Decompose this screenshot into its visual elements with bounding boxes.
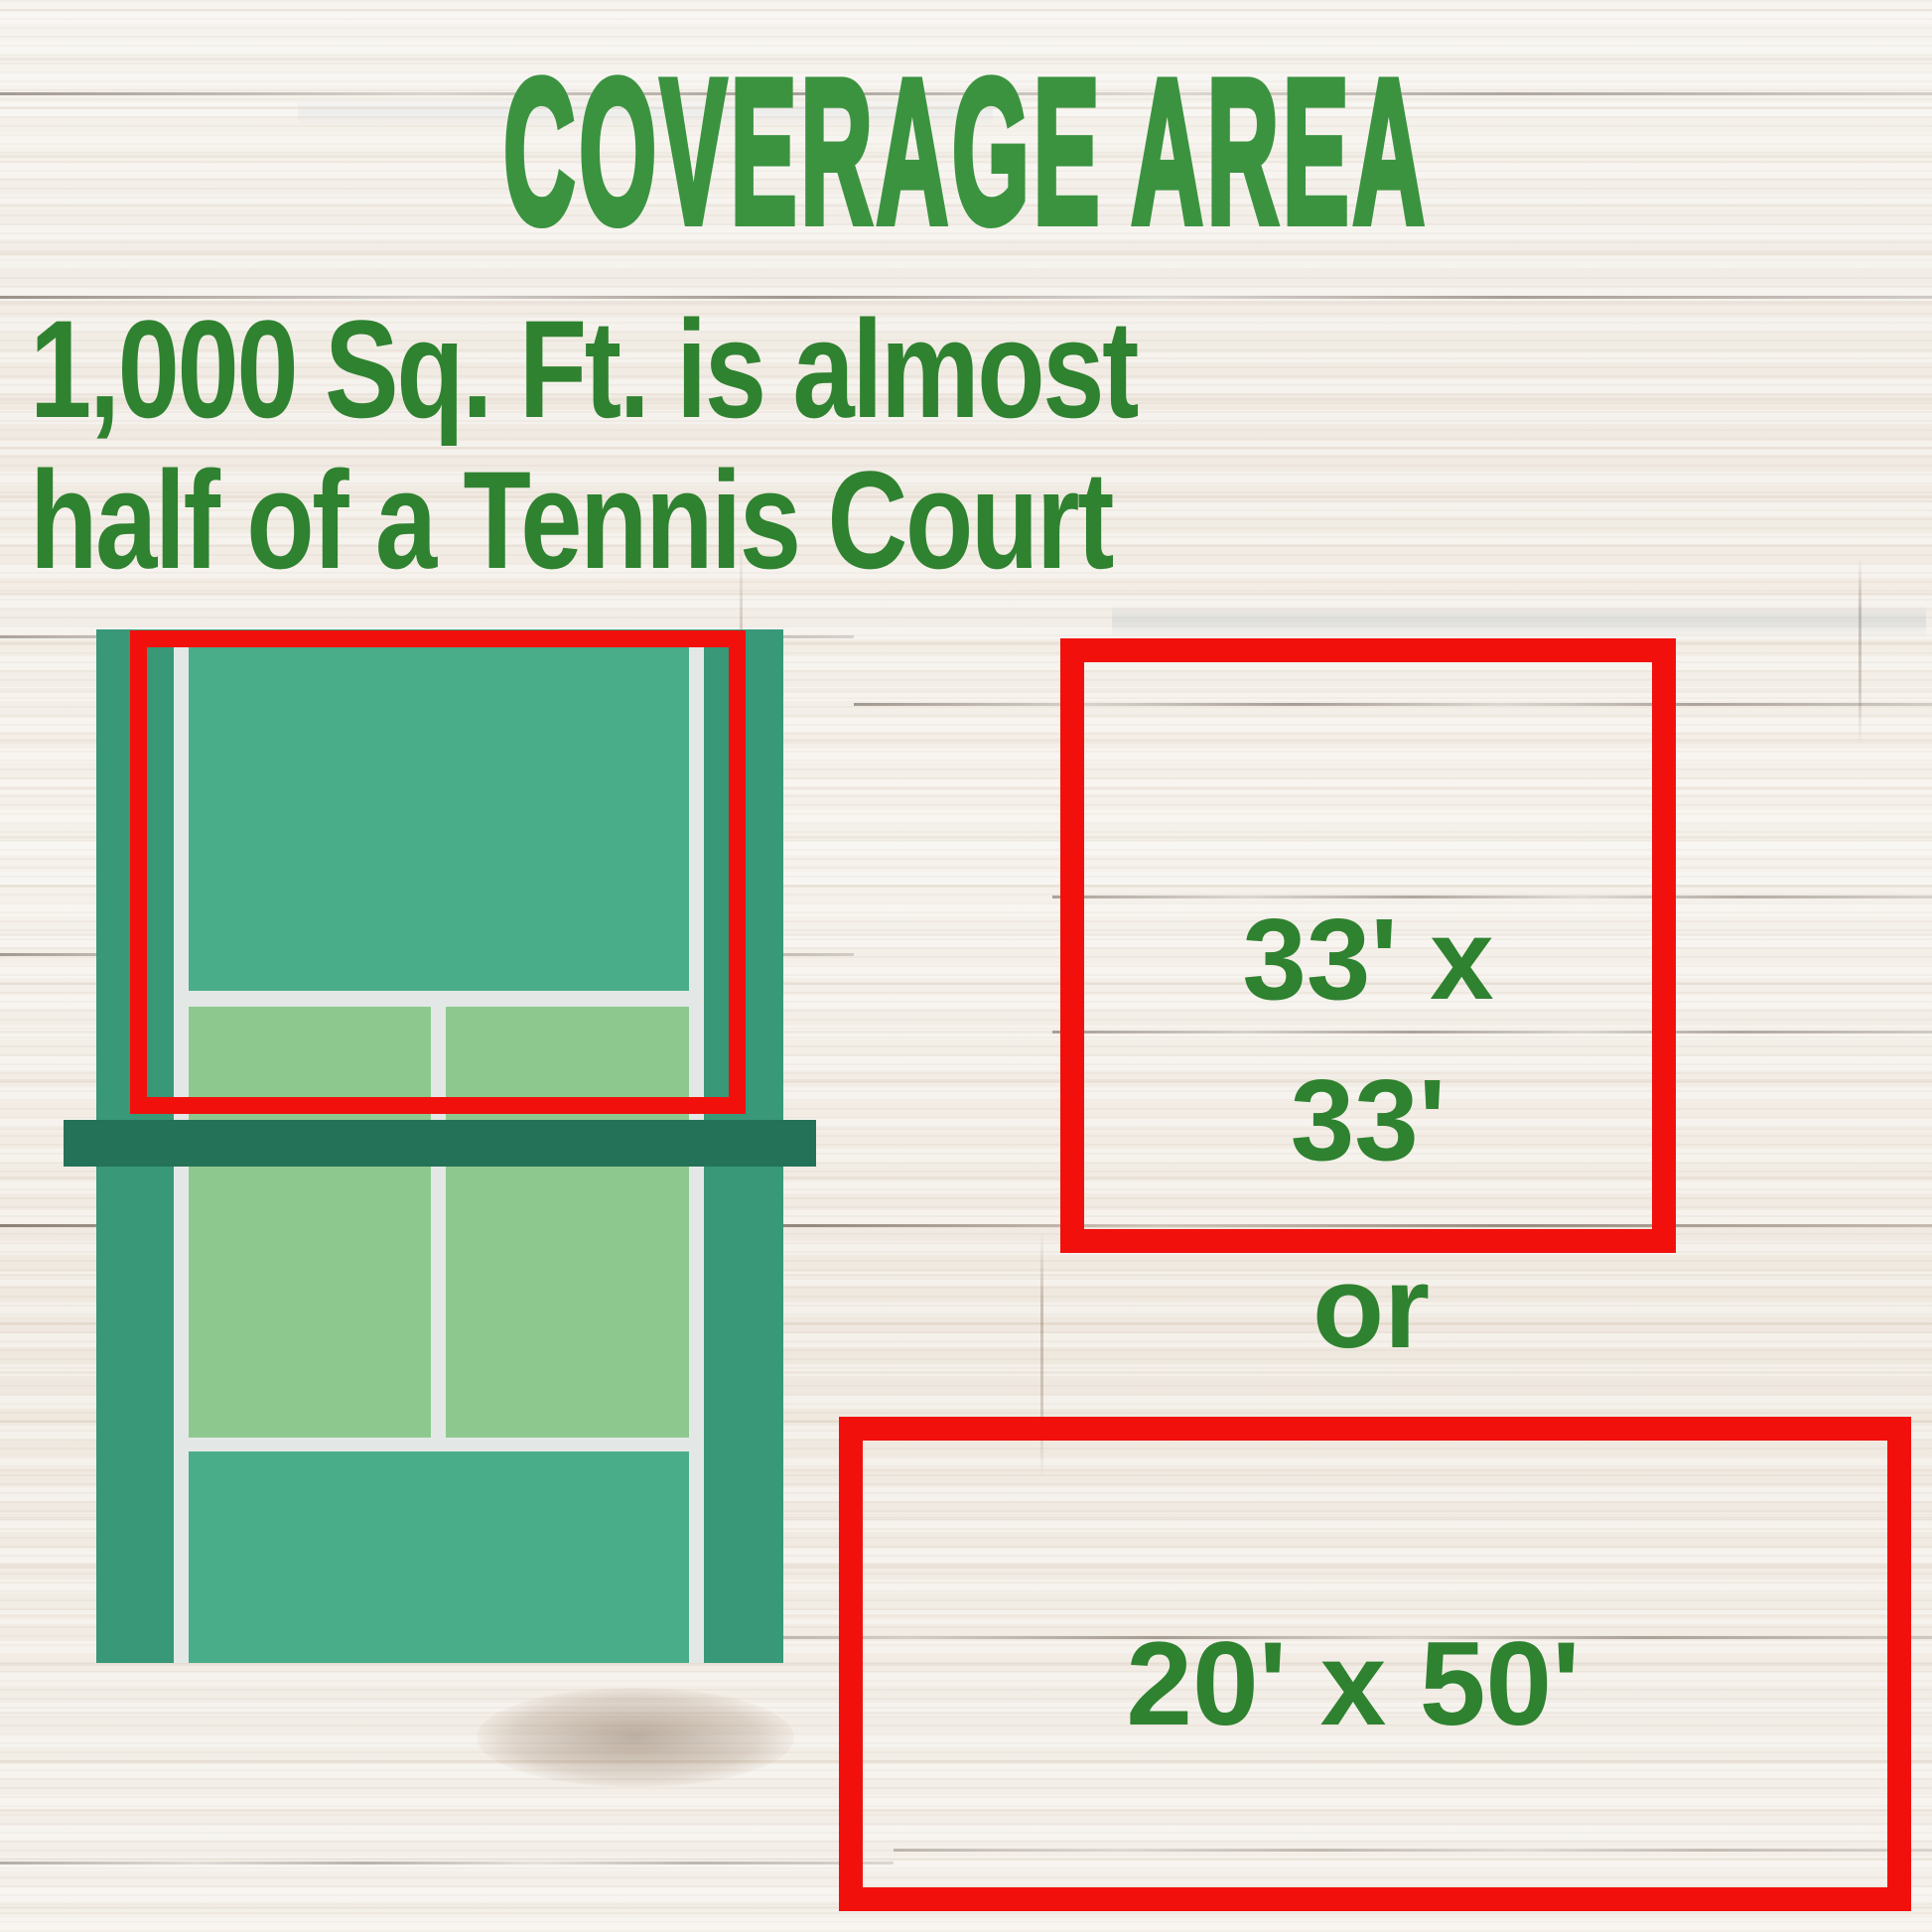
subtitle: 1,000 Sq. Ft. is almost half of a Tennis… bbox=[30, 294, 1137, 596]
page-title: COVERAGE AREA bbox=[0, 50, 1932, 255]
or-label: or bbox=[1312, 1249, 1430, 1366]
square-dimension-line-2: 33' bbox=[1084, 1039, 1652, 1200]
service-line-bottom bbox=[189, 1438, 689, 1451]
subtitle-line-1: 1,000 Sq. Ft. is almost bbox=[30, 294, 1137, 445]
plank-seam bbox=[0, 1862, 894, 1864]
tennis-net-band bbox=[64, 1120, 816, 1167]
square-dimension-line-1: 33' x bbox=[1084, 879, 1652, 1039]
rect-dimensions-label: 20' x 50' bbox=[841, 1619, 1865, 1748]
square-33x33-outline: 33' x 33' bbox=[1060, 638, 1676, 1253]
half-court-highlight-outline bbox=[130, 630, 746, 1114]
wood-gray-streak bbox=[1112, 604, 1926, 637]
square-dimensions-label: 33' x 33' bbox=[1084, 879, 1652, 1200]
rect-20x50-outline: 20' x 50' bbox=[839, 1417, 1911, 1911]
subtitle-line-2: half of a Tennis Court bbox=[30, 445, 1137, 596]
coverage-area-infographic: COVERAGE AREA 1,000 Sq. Ft. is almost ha… bbox=[0, 0, 1932, 1932]
wood-crack bbox=[1859, 556, 1862, 745]
wood-knot bbox=[477, 1688, 794, 1787]
